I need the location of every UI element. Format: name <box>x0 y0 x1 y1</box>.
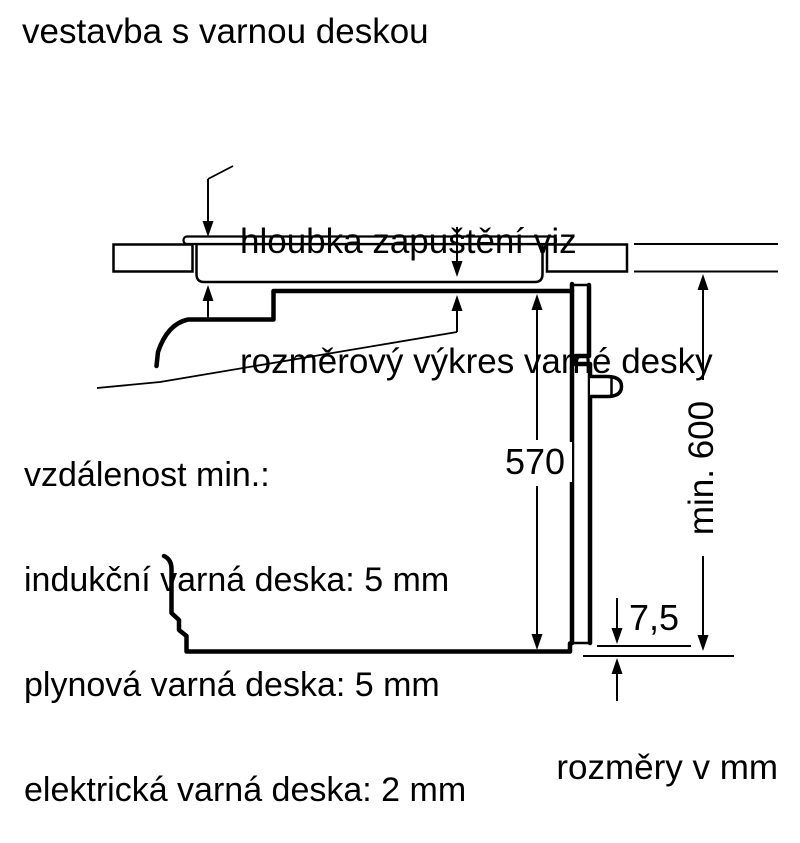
dim-label-7-5: 7,5 <box>629 598 679 638</box>
dim-label-min-600: min. 600 <box>683 377 721 559</box>
clearance-note-line4: elektrická varná deska: 2 mm <box>24 773 466 808</box>
clearance-note-line3: plynová varná deska: 5 mm <box>24 668 466 703</box>
dim-label-570: 570 <box>498 442 572 482</box>
recess-depth-note-line2: rozměrový výkres varné desky <box>240 342 713 382</box>
clearance-arrow-left <box>203 285 214 318</box>
recess-depth-note-line1: hloubka zapuštění viz <box>240 222 713 262</box>
page-title: vestavba s varnou deskou <box>22 12 429 52</box>
recess-depth-note: hloubka zapuštění viz rozměrový výkres v… <box>240 142 713 422</box>
clearance-note: vzdálenost min.: indukční varná deska: 5… <box>24 388 466 843</box>
clearance-note-line1: vzdálenost min.: <box>24 458 466 493</box>
worktop-left-section <box>114 245 193 272</box>
recess-depth-leader-arrow <box>203 166 234 237</box>
units-note: rozměry v mm <box>556 748 778 788</box>
clearance-note-line2: indukční varná deska: 5 mm <box>24 563 466 598</box>
